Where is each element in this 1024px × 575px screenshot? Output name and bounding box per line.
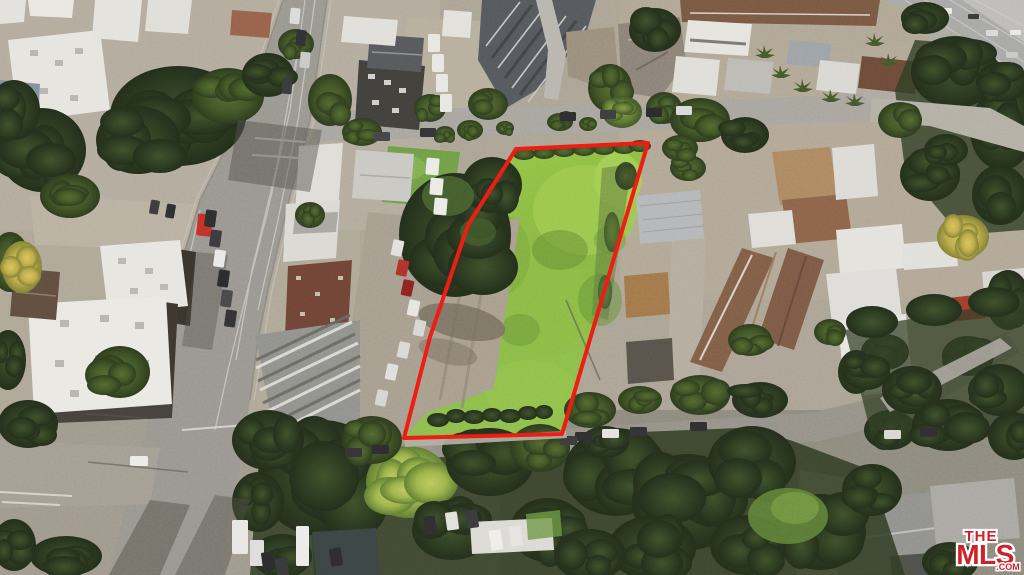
- svg-text:.COM: .COM: [996, 562, 1020, 572]
